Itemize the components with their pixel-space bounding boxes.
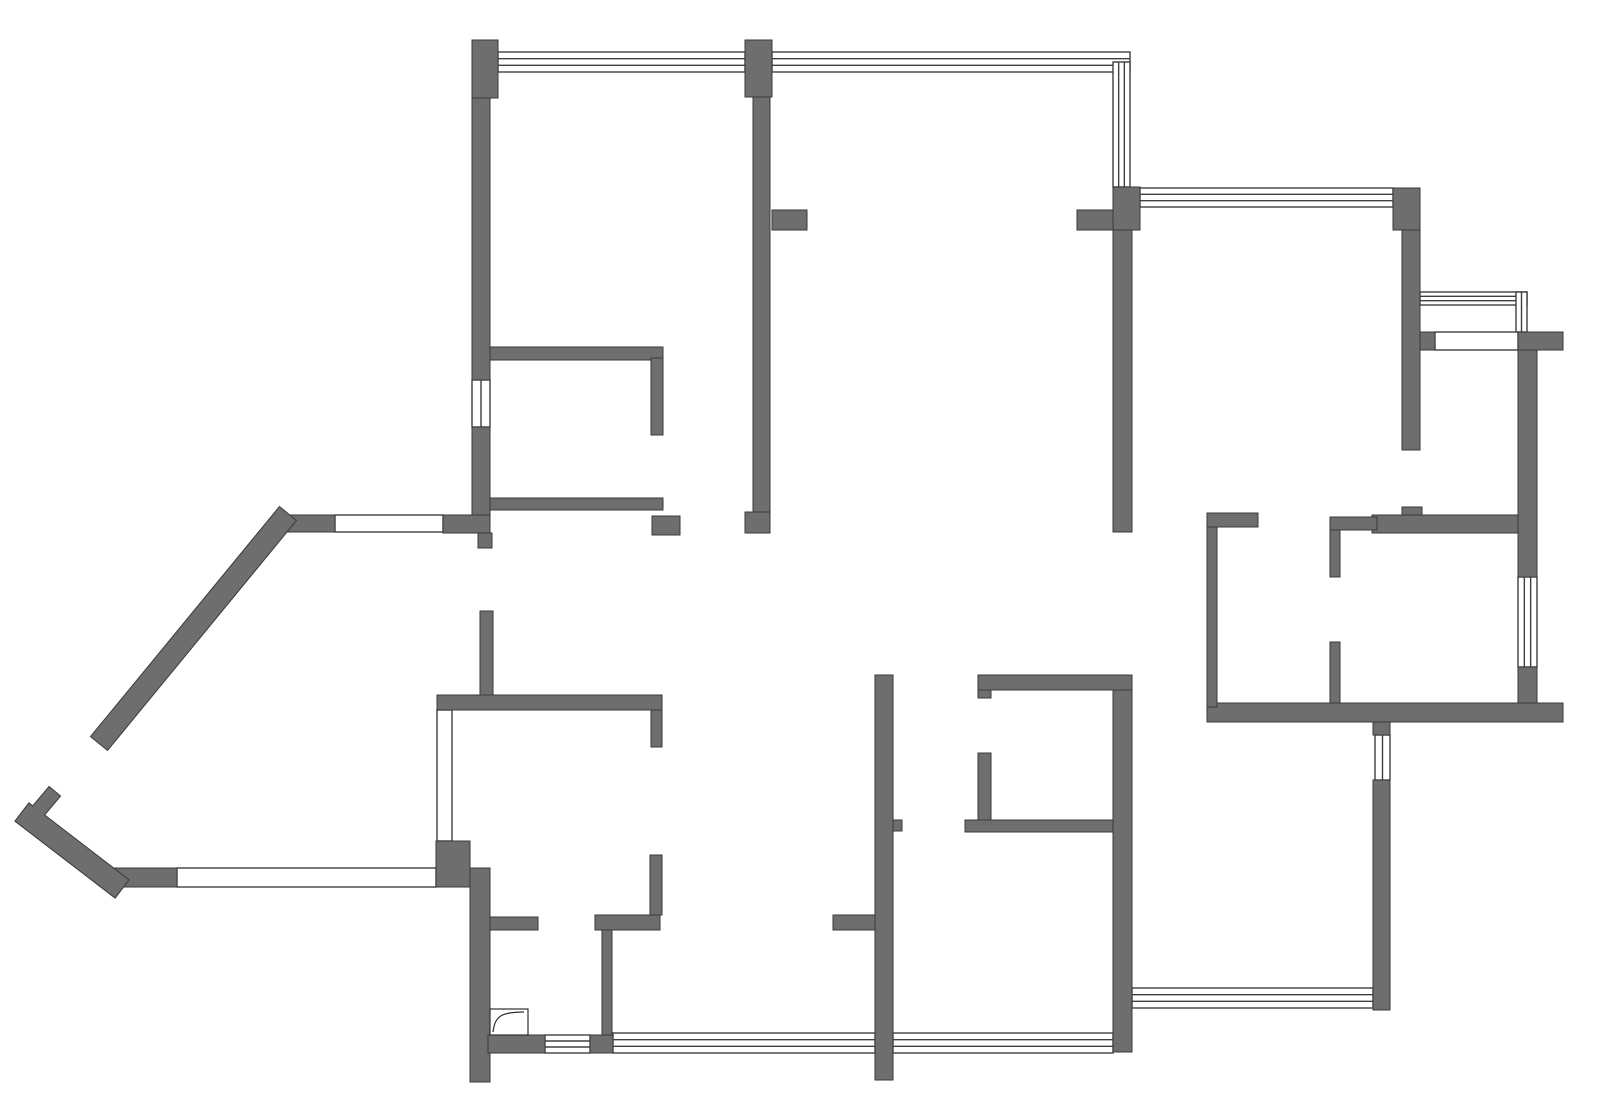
wall-segment bbox=[595, 915, 660, 930]
window-frame bbox=[498, 52, 745, 72]
wall-segment bbox=[472, 40, 498, 98]
wall-segment bbox=[1420, 332, 1435, 350]
window bbox=[1140, 188, 1393, 207]
wall-segment bbox=[480, 611, 493, 695]
window-frame bbox=[772, 52, 1130, 72]
wall-segment bbox=[490, 917, 538, 930]
wall-segment bbox=[1402, 230, 1420, 450]
wall-segment bbox=[772, 210, 807, 230]
wall-segment bbox=[490, 498, 663, 510]
window-frame bbox=[613, 1033, 875, 1053]
wall-segment bbox=[443, 515, 490, 533]
door-symbol bbox=[490, 1009, 528, 1035]
wall-segment bbox=[1393, 188, 1420, 230]
window-frame bbox=[1113, 62, 1130, 187]
wall-segment bbox=[1207, 703, 1563, 722]
window bbox=[472, 380, 490, 427]
wall-segment bbox=[745, 512, 770, 533]
wall-segment bbox=[965, 820, 1113, 832]
wall-segment bbox=[488, 1035, 545, 1053]
wall-segment bbox=[1077, 210, 1113, 230]
wall-segment bbox=[753, 97, 770, 512]
window bbox=[1132, 988, 1373, 1008]
window-frame bbox=[335, 515, 443, 532]
wall-segment bbox=[978, 753, 991, 820]
wall-segment bbox=[833, 915, 875, 930]
wall-segment bbox=[651, 358, 663, 435]
window-frame bbox=[1140, 188, 1393, 207]
wall-segment bbox=[1518, 667, 1537, 703]
window bbox=[1435, 332, 1518, 350]
wall-segment bbox=[650, 855, 662, 915]
window bbox=[177, 868, 436, 887]
wall-segment bbox=[470, 868, 490, 1082]
wall-segment bbox=[893, 820, 902, 831]
wall-segment bbox=[1113, 187, 1140, 230]
window-frame bbox=[1420, 292, 1527, 305]
window-frame bbox=[1518, 577, 1537, 667]
window-frame bbox=[177, 868, 436, 887]
wall-segment bbox=[590, 1035, 613, 1053]
wall-segment bbox=[1113, 690, 1132, 1052]
wall-segment bbox=[745, 40, 772, 97]
wall-segment bbox=[1207, 513, 1258, 527]
window bbox=[1113, 62, 1130, 187]
wall-segment bbox=[436, 841, 470, 887]
wall-segment bbox=[1518, 350, 1537, 577]
wall-segment bbox=[978, 675, 1132, 690]
wall-segment bbox=[1373, 722, 1390, 735]
window bbox=[498, 52, 745, 72]
wall-segment bbox=[651, 710, 662, 747]
window-frame bbox=[437, 710, 452, 841]
window bbox=[1375, 735, 1390, 780]
window bbox=[1516, 292, 1527, 332]
wall-segment bbox=[1372, 515, 1518, 533]
window bbox=[335, 515, 443, 532]
wall-segment bbox=[875, 675, 893, 1080]
wall-segment bbox=[490, 347, 663, 360]
window bbox=[437, 710, 452, 841]
window-frame bbox=[893, 1033, 1113, 1053]
wall-segment bbox=[602, 930, 612, 1035]
wall-segment bbox=[437, 695, 662, 710]
window bbox=[893, 1033, 1113, 1053]
window-frame bbox=[545, 1035, 590, 1053]
floor-plan-canvas bbox=[0, 0, 1600, 1109]
wall-segment bbox=[1330, 530, 1340, 577]
doors-layer bbox=[490, 1009, 528, 1035]
wall-segment bbox=[1373, 780, 1390, 1010]
wall-segment bbox=[652, 516, 680, 535]
wall-segment bbox=[1207, 527, 1217, 707]
window bbox=[1420, 292, 1527, 305]
wall-segment bbox=[478, 533, 492, 548]
window bbox=[545, 1035, 590, 1053]
window bbox=[613, 1033, 875, 1053]
wall-segment bbox=[1330, 642, 1340, 703]
window-frame bbox=[1435, 332, 1518, 350]
window bbox=[772, 52, 1130, 72]
floor-plan bbox=[0, 0, 1600, 1109]
wall-segment bbox=[1330, 517, 1377, 530]
window-frame bbox=[1132, 988, 1373, 1008]
wall-segment bbox=[472, 98, 490, 380]
wall-segment bbox=[1518, 332, 1563, 350]
window bbox=[1518, 577, 1537, 667]
wall-segment bbox=[1113, 230, 1132, 532]
